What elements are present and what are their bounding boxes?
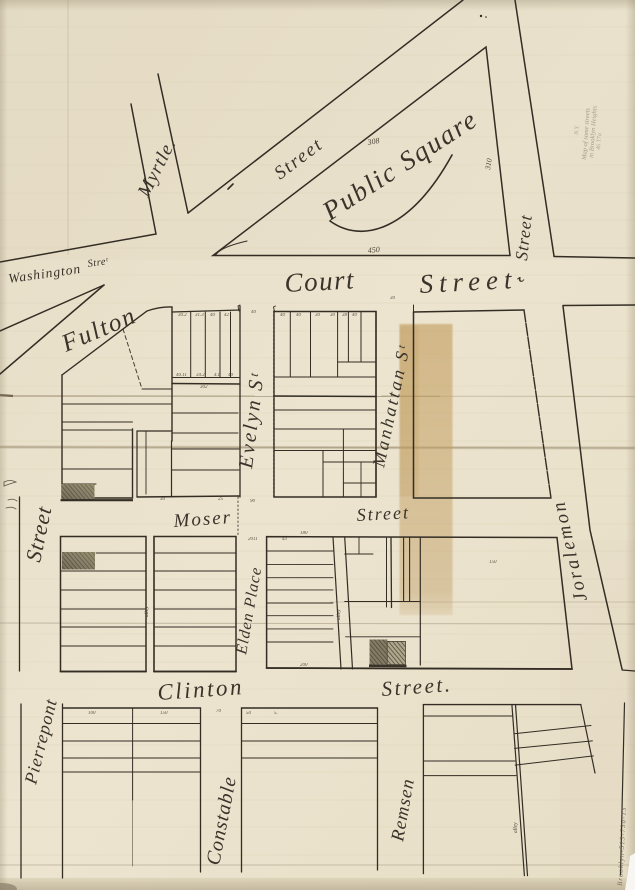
svg-text:40: 40	[228, 373, 234, 378]
svg-text:30: 30	[390, 296, 396, 301]
svg-text:34.2: 34.2	[196, 373, 205, 378]
svg-text:38: 38	[342, 313, 348, 318]
svg-text:150: 150	[489, 560, 497, 565]
svg-text:30.2: 30.2	[178, 313, 187, 318]
svg-text:40.11: 40.11	[176, 373, 187, 378]
svg-text:40: 40	[296, 313, 302, 318]
svg-text:Street: Street	[356, 502, 410, 525]
svg-text:150: 150	[160, 711, 168, 716]
svg-text:42: 42	[224, 313, 230, 318]
svg-text:40: 40	[210, 313, 216, 318]
svg-text:25: 25	[218, 497, 224, 502]
svg-text:Moser: Moser	[172, 507, 233, 532]
svg-text:100: 100	[88, 711, 96, 716]
svg-text:Court: Court	[284, 264, 356, 298]
svg-text:5.: 5.	[274, 711, 278, 716]
svg-text:50: 50	[246, 711, 252, 716]
svg-text:180: 180	[300, 531, 308, 536]
svg-text:alley: alley	[144, 606, 150, 617]
svg-text:450: 450	[367, 245, 380, 255]
svg-text:40: 40	[352, 313, 358, 318]
svg-text:30: 30	[315, 313, 321, 318]
svg-text:31.3: 31.3	[195, 313, 204, 318]
svg-text:4.6: 4.6	[214, 373, 221, 378]
svg-text:302: 302	[200, 385, 208, 390]
svg-text:90: 90	[250, 499, 256, 504]
svg-text:Street.: Street.	[381, 672, 453, 701]
svg-text:46 T7a: 46 T7a	[595, 133, 603, 150]
svg-text:70: 70	[216, 709, 222, 714]
svg-text:200: 200	[300, 663, 308, 668]
svg-text:30: 30	[160, 497, 166, 502]
svg-text:43: 43	[282, 537, 288, 542]
svg-text:alley: alley	[336, 609, 342, 620]
svg-text:30: 30	[330, 313, 336, 318]
svg-text:40: 40	[251, 310, 257, 315]
svg-text:Street˞: Street˞	[419, 263, 533, 299]
svg-text:2011: 2011	[248, 537, 258, 542]
svg-text:N.Y.: N.Y.	[574, 125, 581, 136]
svg-text:alley: alley	[512, 822, 519, 834]
svg-text:40: 40	[280, 313, 286, 318]
